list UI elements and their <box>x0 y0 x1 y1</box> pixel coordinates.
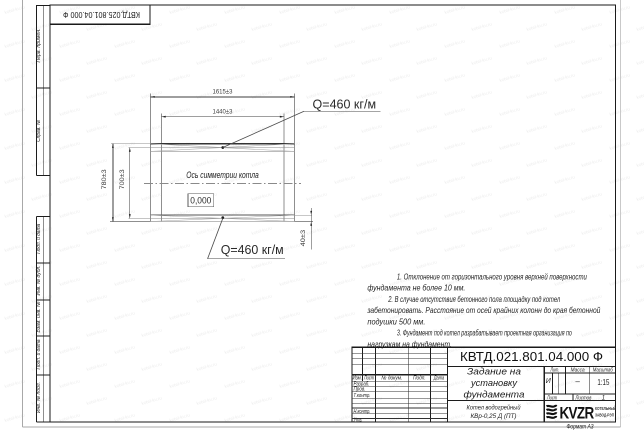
svg-text:Пров.: Пров. <box>354 387 366 393</box>
svg-text:Лит.: Лит. <box>550 368 560 374</box>
svg-text:установку: установку <box>470 378 518 388</box>
svg-text:–: – <box>575 377 580 386</box>
svg-text:2. В случае отсутствия бетонно: 2. В случае отсутствия бетонного пола пл… <box>388 294 561 304</box>
svg-text:1615±3: 1615±3 <box>213 89 233 96</box>
svg-text:фундамента: фундамента <box>464 390 525 400</box>
svg-text:1: 1 <box>602 396 605 402</box>
svg-text:0,000: 0,000 <box>190 196 211 206</box>
svg-text:3. Фундамент под котел разраба: 3. Фундамент под котел разрабатывает про… <box>397 328 572 338</box>
svg-text:забетонировать. Расстояние от: забетонировать. Расстояние от осей крайн… <box>367 305 601 315</box>
svg-text:Подп. и дата: Подп. и дата <box>36 224 42 254</box>
svg-text:700±3: 700±3 <box>119 169 126 189</box>
svg-text:Утв.: Утв. <box>353 418 363 424</box>
svg-text:Ось симметрии котла: Ось симметрии котла <box>186 170 259 180</box>
svg-text:Котел водогрейный: Котел водогрейный <box>467 404 521 412</box>
svg-text:Подп.: Подп. <box>413 376 426 382</box>
svg-text:KVZR: KVZR <box>560 404 595 422</box>
svg-text:Задание на: Задание на <box>467 367 521 377</box>
svg-text:КВр-0,25 Д (ПТ): КВр-0,25 Д (ПТ) <box>471 413 517 420</box>
svg-text:№ докум.: № докум. <box>381 376 402 382</box>
svg-text:Н.контр.: Н.контр. <box>354 409 371 415</box>
svg-text:Подп. и дата: Подп. и дата <box>36 340 42 370</box>
svg-text:Масса: Масса <box>571 368 585 374</box>
svg-text:Перв. примен.: Перв. примен. <box>36 28 42 62</box>
svg-text:Т.контр.: Т.контр. <box>354 393 371 399</box>
svg-text:Q=460 кг/м: Q=460 кг/м <box>313 98 377 112</box>
svg-text:Дата: Дата <box>433 376 444 382</box>
svg-text:Справ. №: Справ. № <box>36 120 42 142</box>
svg-text:1440±3: 1440±3 <box>213 108 233 115</box>
svg-text:1. Отклонение от горизонтально: 1. Отклонение от горизонтального уровня … <box>397 271 587 281</box>
svg-text:Q=460 кг/м: Q=460 кг/м <box>221 243 284 257</box>
svg-text:1:15: 1:15 <box>597 378 609 387</box>
svg-text:Масштаб: Масштаб <box>593 368 614 374</box>
svg-text:40±3: 40±3 <box>300 230 307 247</box>
svg-text:Лист: Лист <box>546 396 557 402</box>
svg-text:Формат А3: Формат А3 <box>567 423 594 430</box>
svg-text:Листов: Листов <box>575 396 592 402</box>
svg-text:подушки 500 мм.: подушки 500 мм. <box>367 316 425 326</box>
svg-text:780±3: 780±3 <box>101 169 108 189</box>
svg-text:фундамента не более 10 мм.: фундамента не более 10 мм. <box>367 283 465 293</box>
svg-text:Инв. № подл.: Инв. № подл. <box>36 382 42 413</box>
svg-text:ЗАВОД-РЭП: ЗАВОД-РЭП <box>595 413 614 419</box>
svg-text:Инв. № дубл.: Инв. № дубл. <box>36 266 42 296</box>
svg-text:Взам. инв. №: Взам. инв. № <box>36 302 42 333</box>
svg-text:КВТД.025.801.04.000 Ф: КВТД.025.801.04.000 Ф <box>63 10 140 19</box>
svg-text:КВТД.021.801.04.000 Ф: КВТД.021.801.04.000 Ф <box>460 349 603 364</box>
